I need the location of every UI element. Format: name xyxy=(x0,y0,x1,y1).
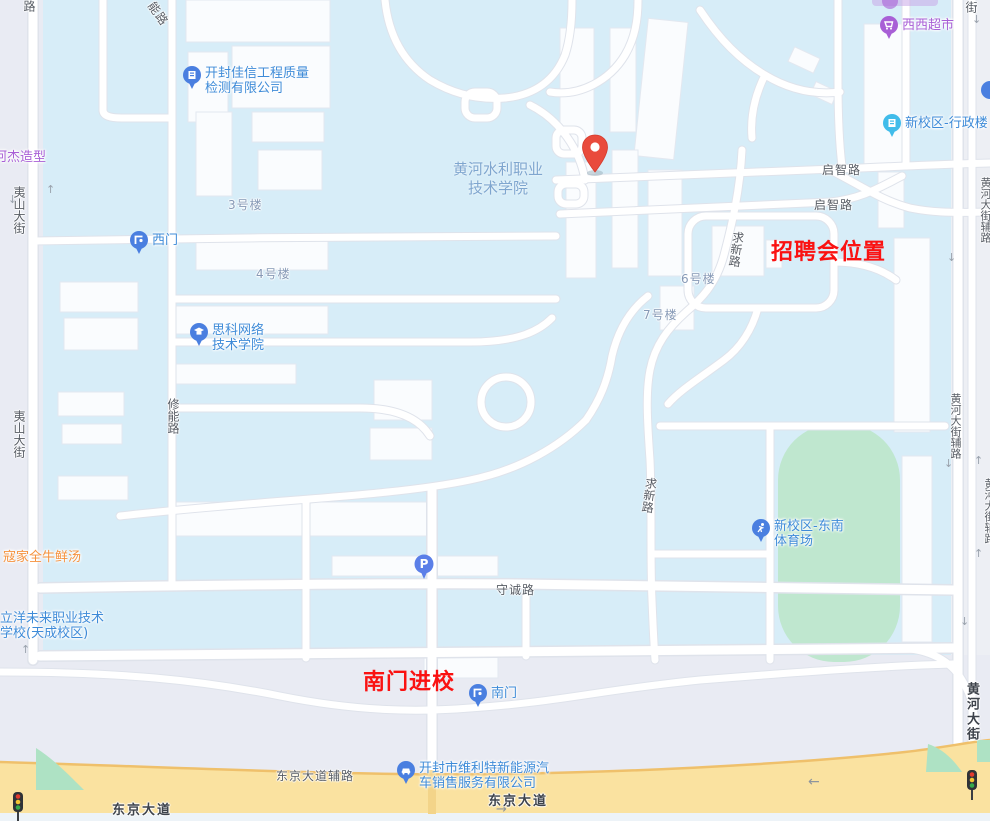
road-label-huanghe-fulu-2: 黄河大街辅路 xyxy=(949,393,962,459)
road-arrow: ← xyxy=(808,777,820,788)
road-arrow: ↑ xyxy=(974,548,983,559)
road-label-qizhi-2: 启智路 xyxy=(814,196,853,213)
poi-jiaxin[interactable]: 开封佳信工程质量 检测有限公司 xyxy=(183,66,309,96)
road-label-jie: 街 xyxy=(964,1,977,13)
building-label-7: 7号楼 xyxy=(643,306,678,323)
road-arrow: ↓ xyxy=(972,14,981,25)
poi-koujia[interactable]: 寇家全牛鲜汤 xyxy=(3,550,81,565)
annotation-south-gate-entry: 南门进校 xyxy=(363,664,455,696)
svg-text:P: P xyxy=(420,557,429,571)
road-arrow: ↑ xyxy=(974,455,983,466)
building-label-3: 3号楼 xyxy=(228,196,263,213)
road-arrow: ↓ xyxy=(960,616,969,627)
road-label-partial: 路 xyxy=(22,0,35,12)
poi-sike[interactable]: 思科网络 技术学院 xyxy=(190,323,264,353)
road-label-yishan-1: 夷山大街 xyxy=(12,186,25,234)
road-arrow: ↓ xyxy=(944,458,953,469)
supermarket-pin-icon xyxy=(880,16,898,40)
poi-stadium[interactable]: 新校区-东南 体育场 xyxy=(752,519,844,549)
road-label-huanghe-fulu-3: 黄河大街辅路 xyxy=(983,478,990,544)
poi-south-gate-label: 南门 xyxy=(491,686,517,701)
poi-sike-line1: 思科网络 xyxy=(212,323,264,338)
gate-pin-icon xyxy=(469,684,487,708)
poi-jiaxin-line1: 开封佳信工程质量 xyxy=(205,66,309,81)
poi-west-gate-label: 西门 xyxy=(152,233,178,248)
company-pin-icon xyxy=(183,66,201,90)
poi-west-gate[interactable]: 西门 xyxy=(130,231,178,255)
school-pin-icon xyxy=(190,323,208,347)
admin-pin-icon xyxy=(883,114,901,138)
map-canvas[interactable]: ↓ ↑ ↑ ↓ ↓ ↑ ↑ ↓ ↓ ← → 路 能路 夷山大街 夷山大街 修能路… xyxy=(0,0,990,821)
poi-admin-label: 新校区-行政楼 xyxy=(905,116,988,131)
road-arrow: ↓ xyxy=(947,252,956,263)
road-label-huanghe-fulu-1: 黄河大街辅路 xyxy=(979,177,990,243)
poi-hejie[interactable]: 河杰造型 xyxy=(0,150,46,165)
road-label-huanghe-dajie: 黄河大街 xyxy=(965,682,978,742)
poi-south-gate[interactable]: 南门 xyxy=(469,684,517,708)
gate-pin-icon xyxy=(130,231,148,255)
poi-liyang-line1: 立洋未来职业技术 xyxy=(0,611,104,626)
poi-weilite-line2: 车销售服务有限公司 xyxy=(419,776,549,791)
campus-name-line2: 技术学院 xyxy=(446,179,550,198)
road-arrow: ↑ xyxy=(21,644,30,655)
poi-xixi-label: 西西超市 xyxy=(902,18,954,33)
building-label-6: 6号楼 xyxy=(681,270,716,287)
building-label-4: 4号楼 xyxy=(256,265,291,282)
poi-admin-building[interactable]: 新校区-行政楼 xyxy=(883,114,988,138)
campus-name-line1: 黄河水利职业 xyxy=(446,160,550,179)
poi-weilite[interactable]: 开封市维利特新能源汽 车销售服务有限公司 xyxy=(397,761,549,791)
stadium-pin-icon xyxy=(752,519,770,543)
road-label-dongjing-fulu: 东京大道辅路 xyxy=(276,767,354,784)
traffic-light-icon xyxy=(964,770,980,804)
annotation-job-fair-location: 招聘会位置 xyxy=(771,234,886,266)
road-arrow: ↑ xyxy=(46,184,55,195)
parking-pin[interactable]: P xyxy=(414,554,434,584)
campus-name: 黄河水利职业 技术学院 xyxy=(446,160,550,198)
road-label-dongjing-2: 东京大道 xyxy=(488,790,548,809)
poi-jiaxin-line2: 检测有限公司 xyxy=(205,81,309,96)
road-label-qizhi-1: 启智路 xyxy=(822,161,861,178)
poi-liyang[interactable]: 立洋未来职业技术 学校(天成校区) xyxy=(0,611,104,641)
poi-weilite-line1: 开封市维利特新能源汽 xyxy=(419,761,549,776)
traffic-light-icon xyxy=(10,792,26,821)
location-pin[interactable] xyxy=(581,134,609,182)
road-label-xiuneng: 修能路 xyxy=(166,398,179,434)
poi-xixi-market[interactable]: 西西超市 xyxy=(880,16,954,40)
poi-liyang-line2: 学校(天成校区) xyxy=(0,626,104,641)
poi-sike-line2: 技术学院 xyxy=(212,338,264,353)
poi-stadium-line2: 体育场 xyxy=(774,534,844,549)
road-label-yishan-2: 夷山大街 xyxy=(12,410,25,458)
car-dealer-pin-icon xyxy=(397,761,415,785)
road-label-shoucheng: 守诚路 xyxy=(496,581,535,598)
road-label-dongjing-1: 东京大道 xyxy=(112,799,172,818)
poi-stadium-line1: 新校区-东南 xyxy=(774,519,844,534)
